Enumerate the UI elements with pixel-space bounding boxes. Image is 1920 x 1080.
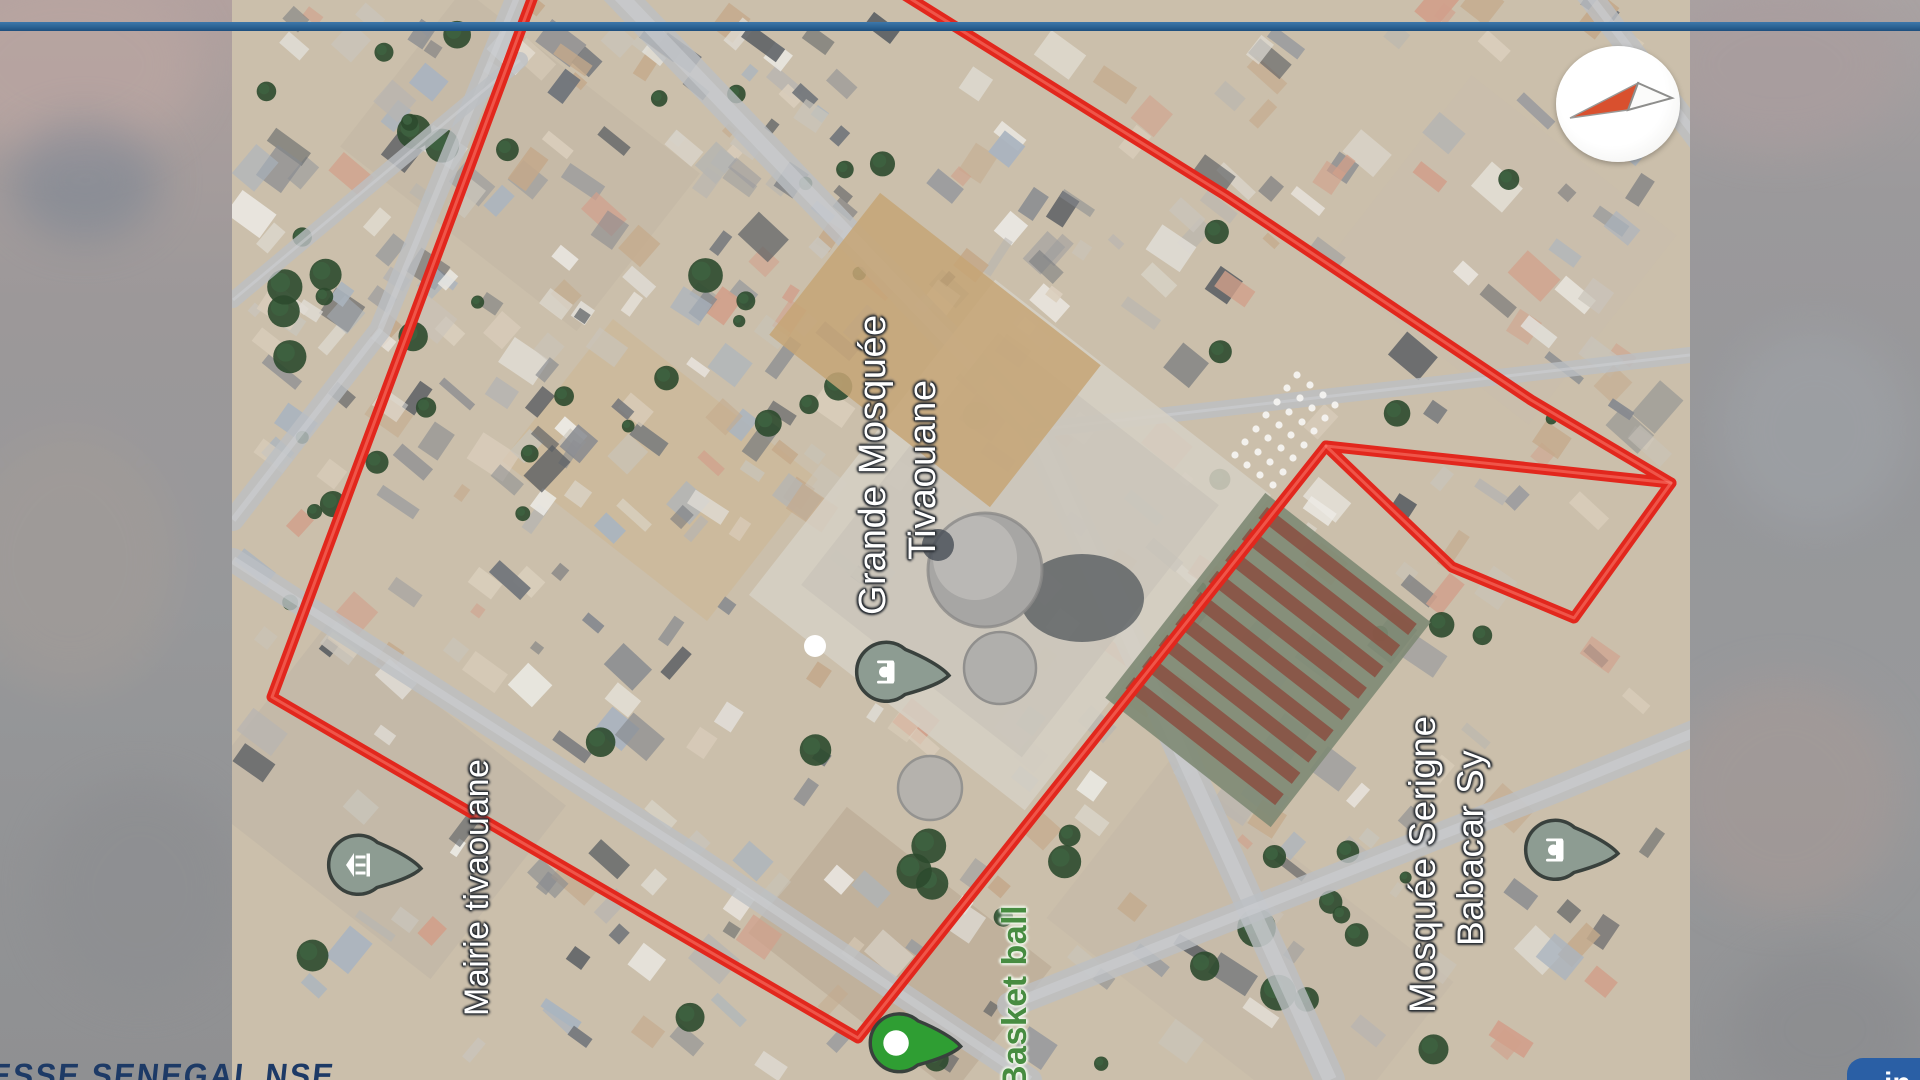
blur-band-left — [0, 0, 232, 1080]
label-mosquee-serigne: Mosquée Serigne — [1402, 715, 1444, 1013]
blur-band-right — [1690, 0, 1920, 1080]
compass-needle — [1556, 46, 1680, 162]
satellite-map-canvas — [0, 0, 1920, 1080]
label-grande-mosquee-line1: Grande Mosquée — [852, 314, 895, 615]
channel-watermark: ESSE SENEGAL NSE — [0, 1057, 337, 1080]
pin-center-dot — [883, 1030, 908, 1055]
linkedin-badge[interactable]: in — [1847, 1058, 1920, 1080]
label-mairie-tivaouane: Mairie tivaouane — [458, 759, 497, 1016]
label-basket-ball: Basket ball — [996, 905, 1035, 1080]
top-divider-rule — [0, 22, 1920, 31]
minaret-dot — [804, 635, 826, 657]
satellite-map[interactable] — [0, 0, 1920, 1080]
label-babacar-sy: Babacar Sy — [1450, 750, 1492, 946]
video-frame: Grande Mosquée Tivaouane Mairie tivaouan… — [0, 0, 1920, 1080]
compass-icon[interactable] — [1556, 46, 1680, 162]
label-grande-mosquee-line2: Tivaouane — [902, 379, 945, 560]
